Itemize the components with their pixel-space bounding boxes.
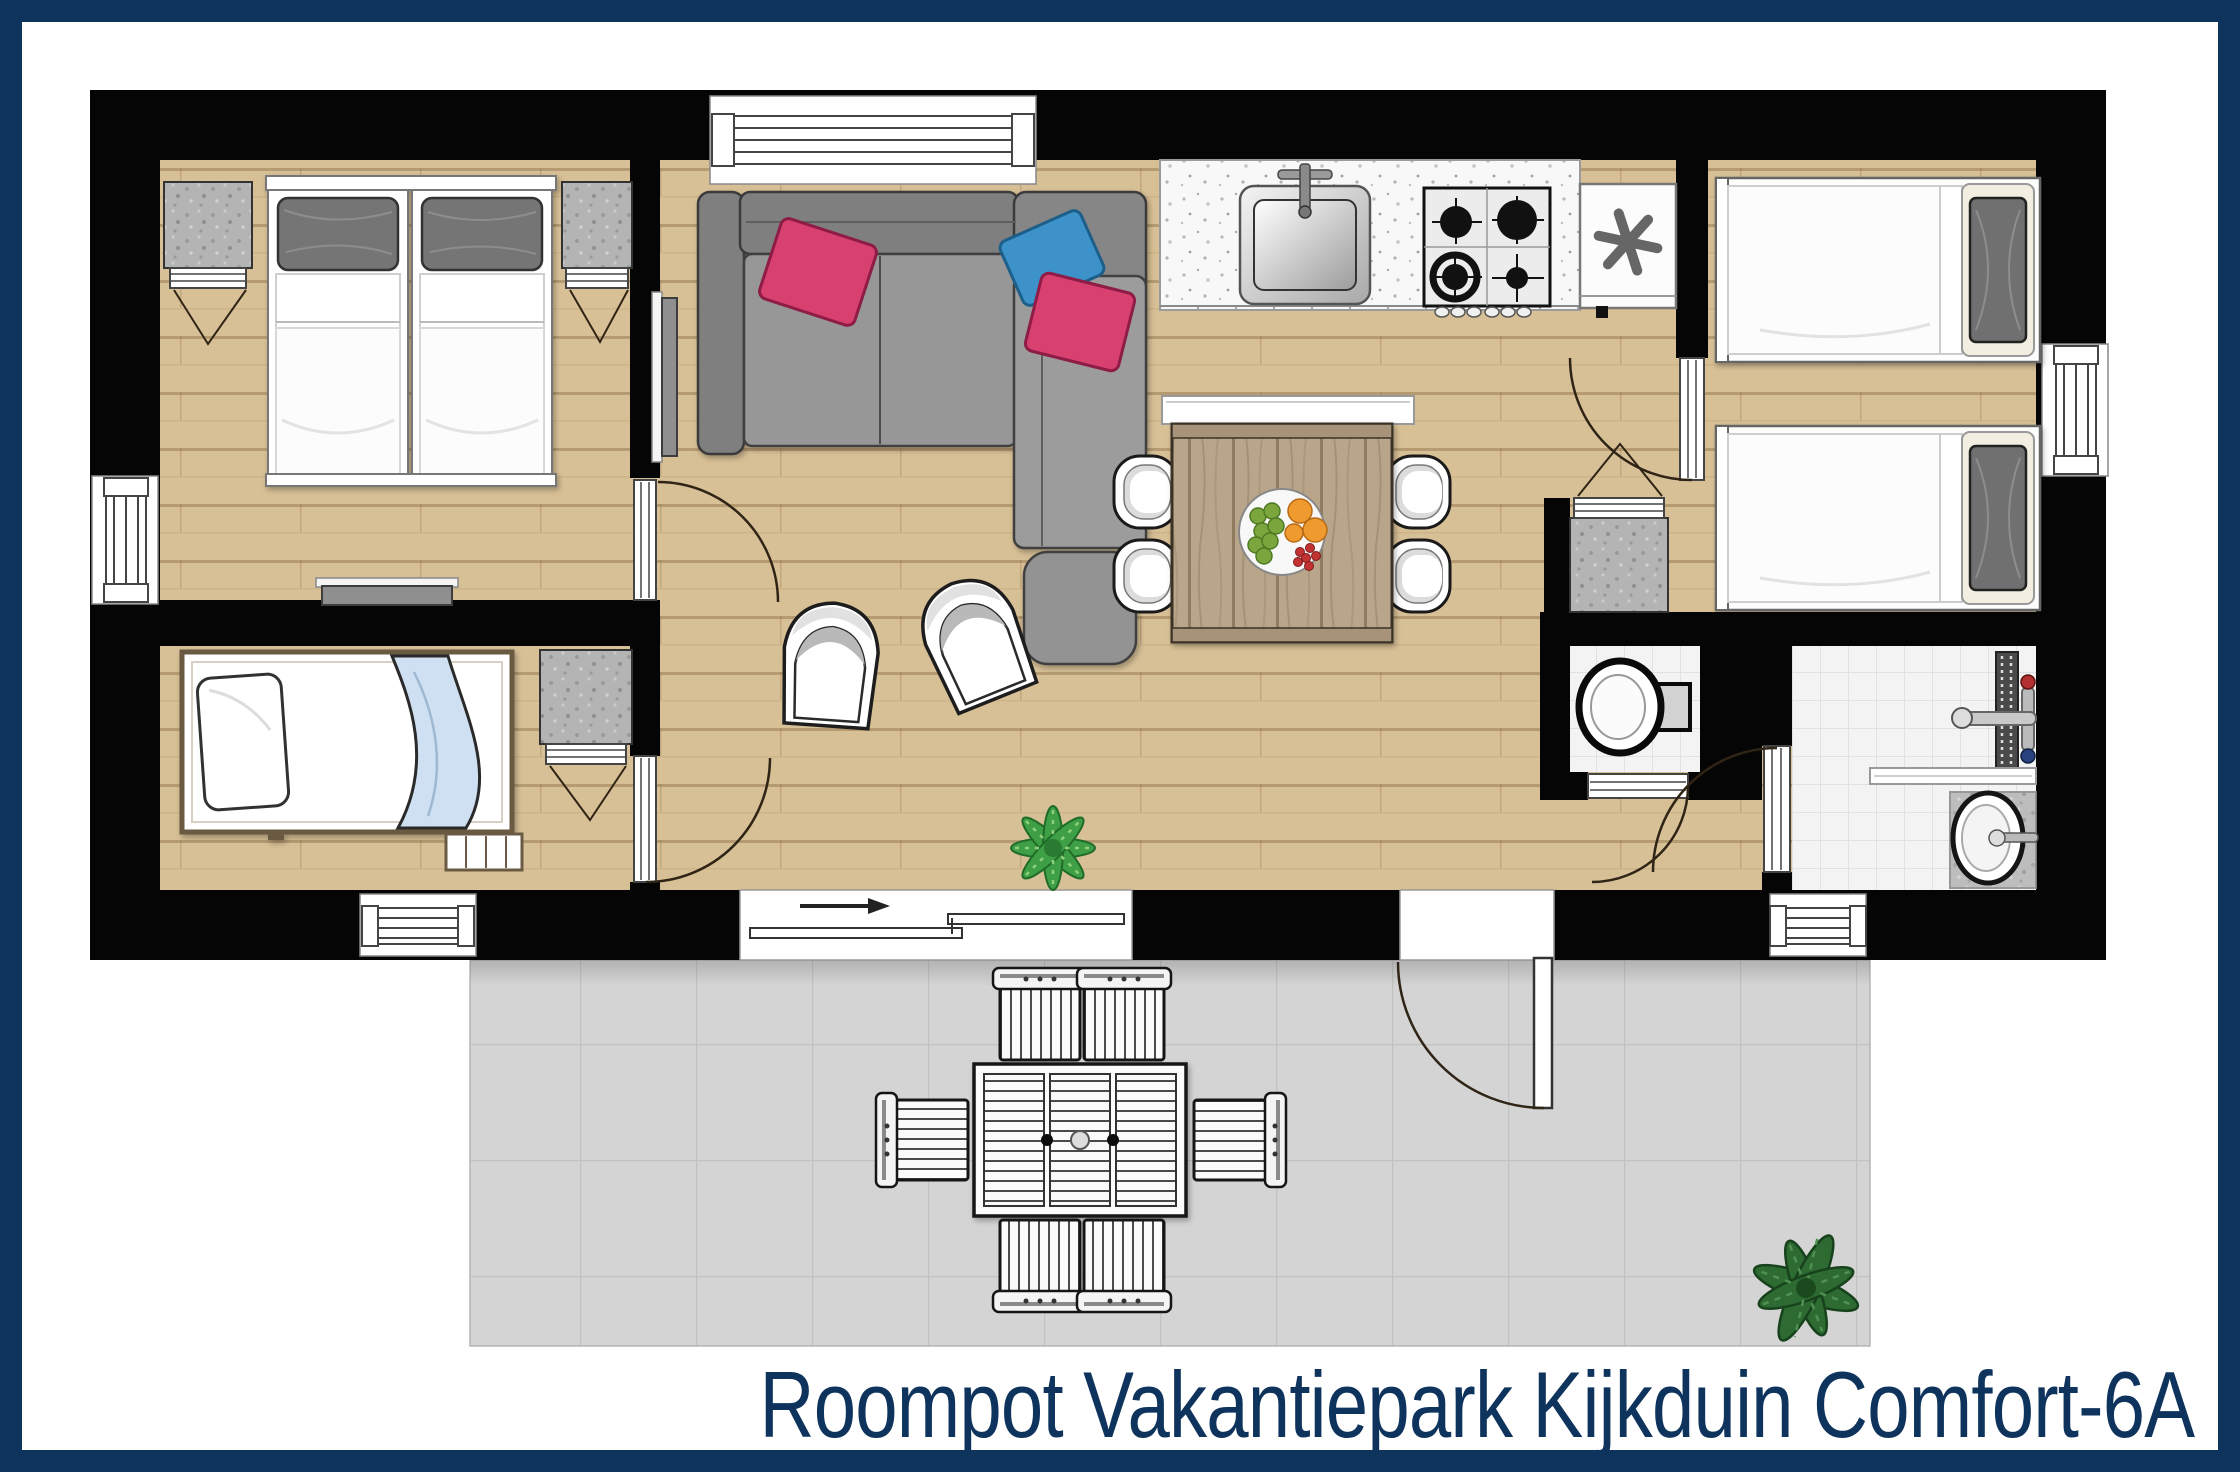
dining-chair-1 (1114, 456, 1178, 528)
bed-single-right-2 (1716, 426, 2040, 610)
outdoor-table (974, 1064, 1186, 1216)
outdoor-chair-4 (1077, 1220, 1171, 1312)
dining-chair-2 (1114, 540, 1178, 612)
window-bedroom1-left (92, 476, 158, 604)
floorplan-drawing (0, 0, 2240, 1472)
plant-living-icon (1011, 806, 1095, 890)
window-living-top (710, 96, 1036, 184)
page-title: Roompot Vakantiepark Kijkduin Comfort-6A (759, 1358, 2194, 1452)
tv-living (652, 292, 677, 462)
bed-single-left (182, 652, 512, 840)
floorplan-page: Roompot Vakantiepark Kijkduin Comfort-6A (0, 0, 2240, 1472)
kitchen-hob (1424, 188, 1550, 317)
outdoor-chair-2 (1077, 968, 1171, 1060)
washbasin (1950, 792, 2038, 888)
fridge-freezer (1580, 184, 1676, 318)
dining-chair-4 (1386, 540, 1450, 612)
outdoor-chair-3 (993, 1220, 1087, 1312)
bed-pillow (196, 673, 289, 811)
entrance-sliding-door (740, 890, 1132, 960)
tv-bedroom1 (316, 578, 458, 605)
dining-table (1172, 424, 1392, 642)
sideboard (1162, 396, 1414, 424)
bed-single-right-1 (1716, 178, 2040, 362)
outdoor-chair-1 (993, 968, 1087, 1060)
glass-partition (1870, 768, 2036, 784)
outdoor-chair-6 (1194, 1093, 1286, 1187)
window-bedroom3-right (2042, 344, 2108, 476)
bench-bed-foot (446, 834, 522, 870)
outdoor-chair-5 (876, 1093, 968, 1187)
window-bathroom-bottom (1770, 894, 1866, 956)
fridge-hinge (1596, 306, 1608, 318)
window-bedroom2-bottom (360, 894, 476, 956)
bed-double (266, 176, 556, 486)
lounge-chair-1 (779, 600, 881, 729)
dining-chair-3 (1386, 456, 1450, 528)
kitchen-sink (1240, 164, 1370, 304)
fruit-bowl (1239, 489, 1327, 575)
